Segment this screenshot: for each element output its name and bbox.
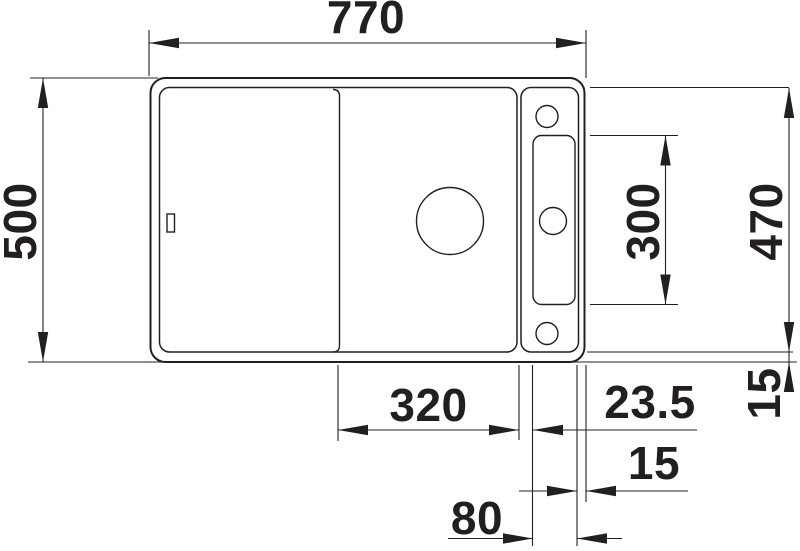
sink-outline (28, 78, 797, 362)
drawing-canvas: 770 500 470 15 300 (0, 0, 800, 551)
arrow-up (660, 136, 670, 166)
dim-label-770: 770 (327, 0, 405, 43)
main-basin-area (160, 88, 518, 353)
dim-label-15-bottom: 15 (628, 437, 680, 489)
dim-label-23-5: 23.5 (604, 376, 696, 428)
dimension-23-5: 23.5 (533, 376, 697, 435)
arrow-left-outside (577, 533, 607, 543)
faucet-hole-middle (540, 208, 567, 235)
sink-technical-drawing: 770 500 470 15 300 (0, 0, 800, 551)
arrow-right-inside (547, 486, 577, 496)
dimension-770: 770 (149, 0, 586, 78)
arrow-left-outside (586, 486, 616, 496)
dimension-500: 500 (0, 78, 48, 362)
dimension-15-bottom: 15 (519, 437, 688, 496)
arrow-down (38, 332, 48, 362)
arrow-right (489, 425, 519, 435)
arrow-up (784, 88, 794, 118)
dim-label-80: 80 (451, 492, 503, 544)
dim-label-470: 470 (740, 182, 792, 260)
dimension-80: 80 (448, 492, 622, 544)
arrow-up (38, 78, 48, 108)
dim-label-320: 320 (389, 379, 467, 431)
arrow-right-outside (503, 533, 533, 543)
tap-hole-top (536, 106, 558, 128)
arrow-left (338, 425, 368, 435)
dimension-320: 320 (338, 379, 519, 435)
tap-hole-bottom (536, 323, 558, 345)
dim-label-15-right: 15 (738, 367, 790, 419)
drain-hole (417, 188, 484, 255)
dimension-300: 300 (590, 136, 678, 305)
dim-label-500: 500 (0, 182, 46, 260)
arrow-down (784, 322, 794, 352)
arrow-left-outside (533, 425, 563, 435)
sink-rim (151, 78, 585, 362)
dim-label-300: 300 (617, 182, 669, 260)
arrow-left (149, 38, 179, 48)
overflow-slot (167, 214, 175, 232)
bowl-divider (333, 90, 340, 353)
arrow-down (660, 275, 670, 305)
dimension-15-right: 15 (738, 362, 794, 420)
arrow-right (556, 38, 586, 48)
